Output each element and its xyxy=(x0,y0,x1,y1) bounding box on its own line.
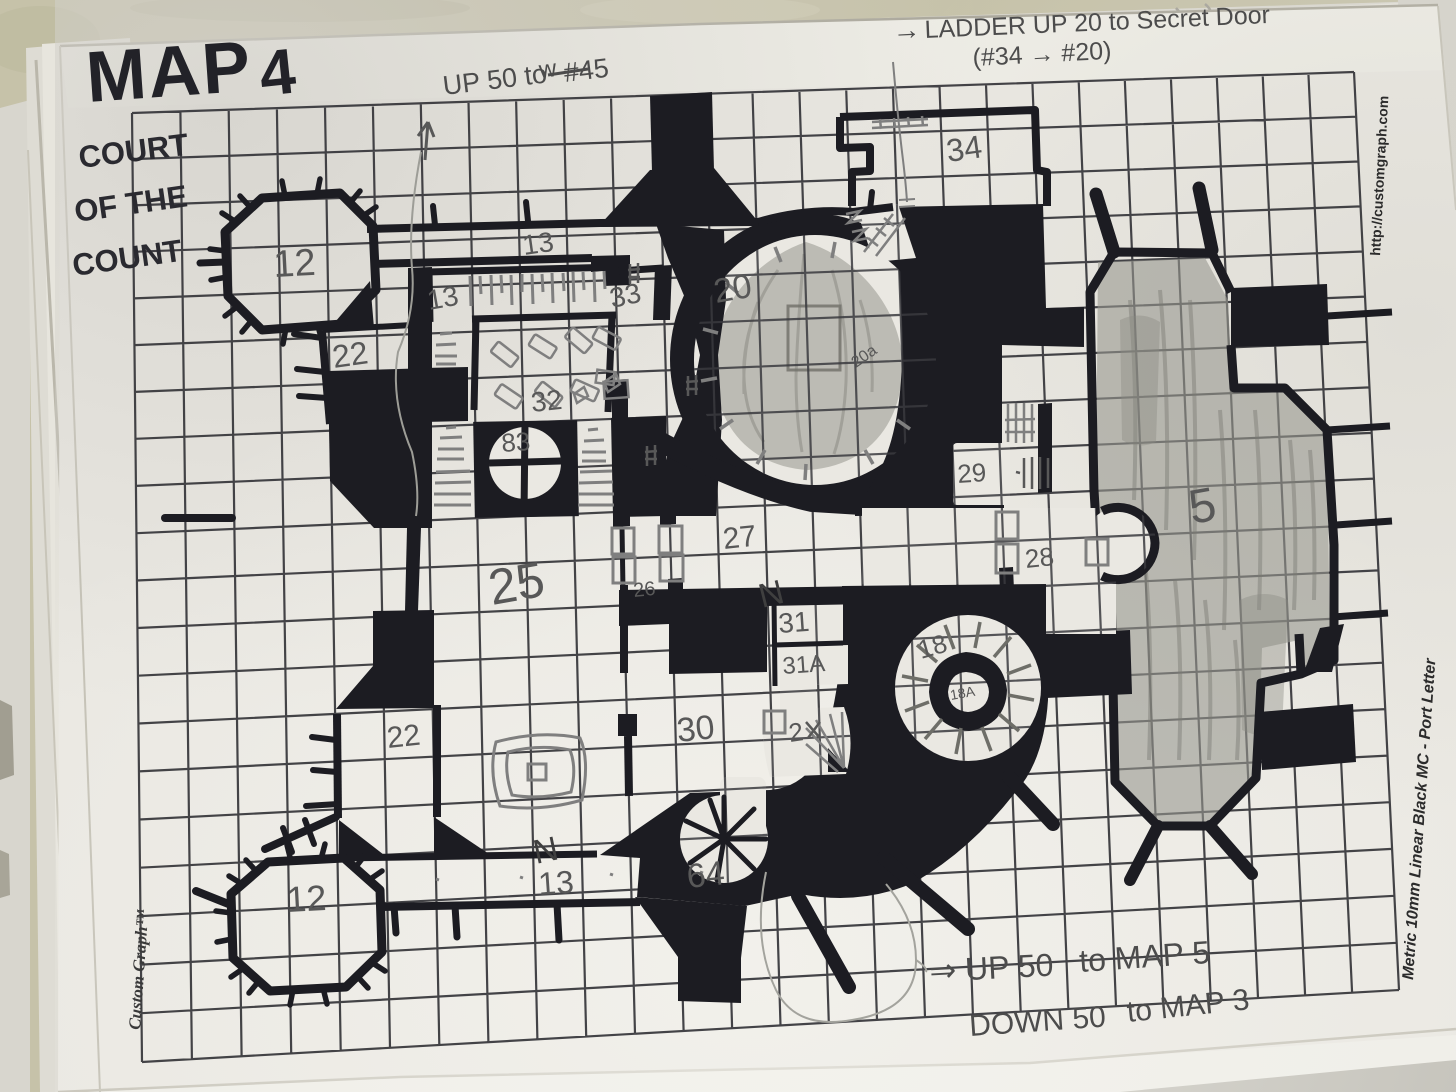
svg-text:13: 13 xyxy=(425,280,461,316)
svg-text:31: 31 xyxy=(777,606,810,639)
svg-text:28: 28 xyxy=(1023,541,1055,574)
svg-text:12: 12 xyxy=(272,242,316,286)
svg-text:→: → xyxy=(892,14,922,46)
svg-text:25: 25 xyxy=(484,551,549,616)
svg-text:⇒ UP 50: ⇒ UP 50 xyxy=(928,947,1054,989)
svg-text:20: 20 xyxy=(711,267,755,311)
svg-text:13: 13 xyxy=(521,226,556,261)
svg-text:29: 29 xyxy=(956,457,987,489)
svg-text:30: 30 xyxy=(675,708,717,750)
svg-text:64: 64 xyxy=(685,854,727,896)
svg-text:31A: 31A xyxy=(782,650,826,680)
svg-text:34: 34 xyxy=(944,128,984,169)
svg-text:22: 22 xyxy=(385,719,422,755)
svg-text:33: 33 xyxy=(607,277,644,314)
svg-text:12: 12 xyxy=(285,877,327,920)
svg-text:27: 27 xyxy=(721,520,758,556)
svg-text:26: 26 xyxy=(632,578,656,602)
svg-text:83: 83 xyxy=(500,426,531,458)
svg-text:13: 13 xyxy=(537,864,575,902)
svg-text:MAP: MAP xyxy=(84,27,255,118)
svg-text:22: 22 xyxy=(330,334,370,375)
svg-text:32: 32 xyxy=(529,384,563,418)
